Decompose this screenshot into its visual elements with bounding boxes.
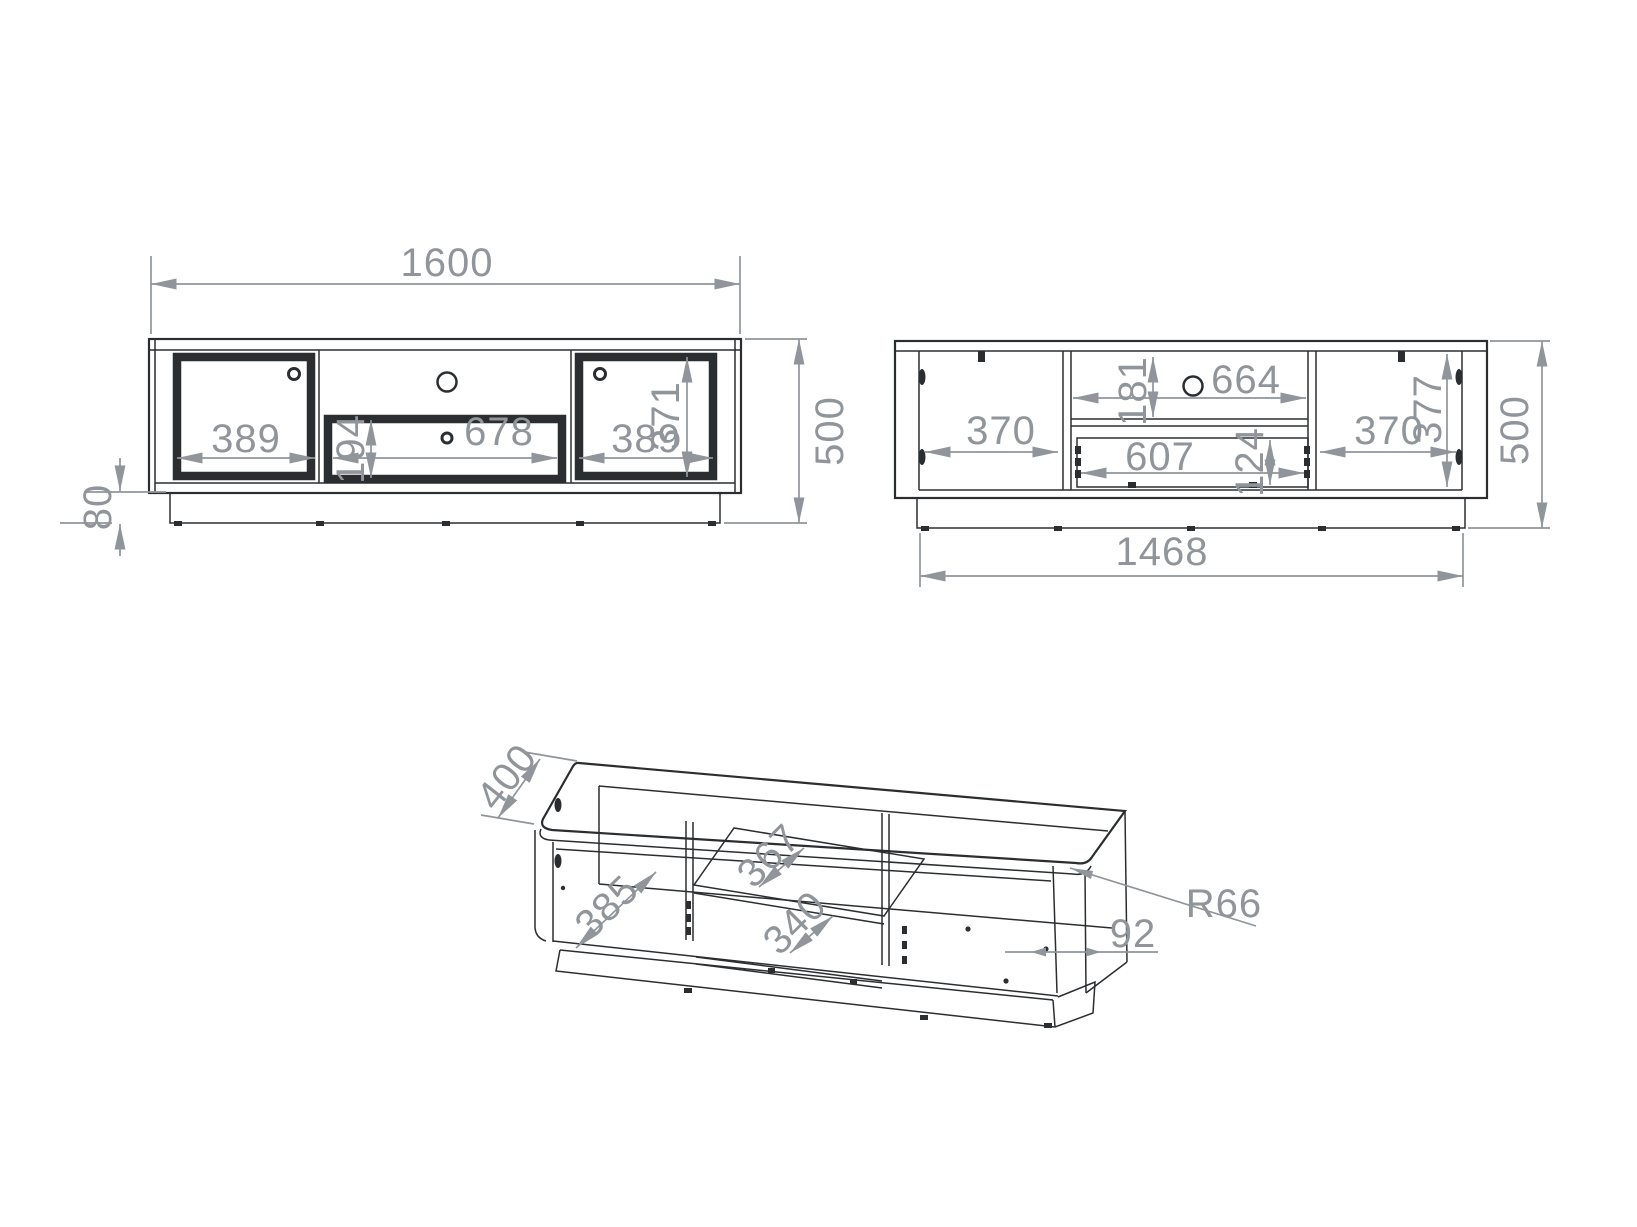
dim-carcass-overall-height: 500	[1493, 395, 1537, 465]
hinge-icon	[1456, 369, 1463, 385]
tv-stand-dimension-drawing: 1600 500 80 389 194 678 389	[0, 0, 1637, 1227]
dim-front-drawer-width: 678	[464, 410, 534, 454]
dim-niche-height: 181	[1111, 356, 1155, 426]
drawer-knob	[442, 433, 452, 443]
dim-front-overall-width: 1600	[401, 241, 494, 285]
hinge-icon	[1456, 449, 1463, 465]
cable-hole-rear	[1184, 377, 1203, 396]
cable-hole	[438, 373, 457, 392]
dim-iso-corner-radius: R66	[1186, 882, 1262, 926]
dim-front-drawer-height: 194	[329, 414, 373, 484]
hinge-icon	[919, 449, 926, 465]
carcass-view-dimensions: 370 181 664 607 124 370 377 500 1468	[920, 341, 1550, 587]
dim-drawer-inner-height: 124	[1228, 427, 1272, 497]
hinge-icon	[555, 854, 562, 868]
technical-drawing-page: 1600 500 80 389 194 678 389	[0, 0, 1637, 1227]
front-view: 1600 500 80 389 194 678 389	[60, 241, 852, 556]
dim-iso-depth: 400	[468, 736, 546, 818]
dim-front-overall-height: 500	[808, 396, 852, 466]
dim-iso-side-panel-depth: 92	[1110, 912, 1157, 956]
left-door-knob	[289, 369, 300, 380]
dim-iso-shelf-depth: 367	[729, 816, 809, 896]
hinge-icon	[919, 369, 926, 385]
right-door-knob	[595, 369, 606, 380]
dim-niche-width: 664	[1211, 358, 1281, 402]
dim-front-left-door-width: 389	[211, 417, 281, 461]
dim-inner-width: 1468	[1116, 530, 1209, 574]
dim-iso-compartment-depth: 385	[567, 867, 648, 947]
carcass-view: 370 181 664 607 124 370 377 500 1468	[895, 341, 1550, 587]
isometric-view: 400 385 367 340 R66 92	[468, 736, 1262, 1028]
dim-iso-drawer-depth: 340	[755, 883, 835, 963]
dim-front-plinth-height: 80	[76, 484, 120, 531]
dim-inner-height: 377	[1406, 374, 1450, 444]
dim-drawer-inner-width: 607	[1125, 435, 1195, 479]
hinge-icon	[555, 798, 562, 812]
dim-front-door-height: 371	[644, 381, 688, 451]
dim-left-compartment-width: 370	[966, 409, 1036, 453]
